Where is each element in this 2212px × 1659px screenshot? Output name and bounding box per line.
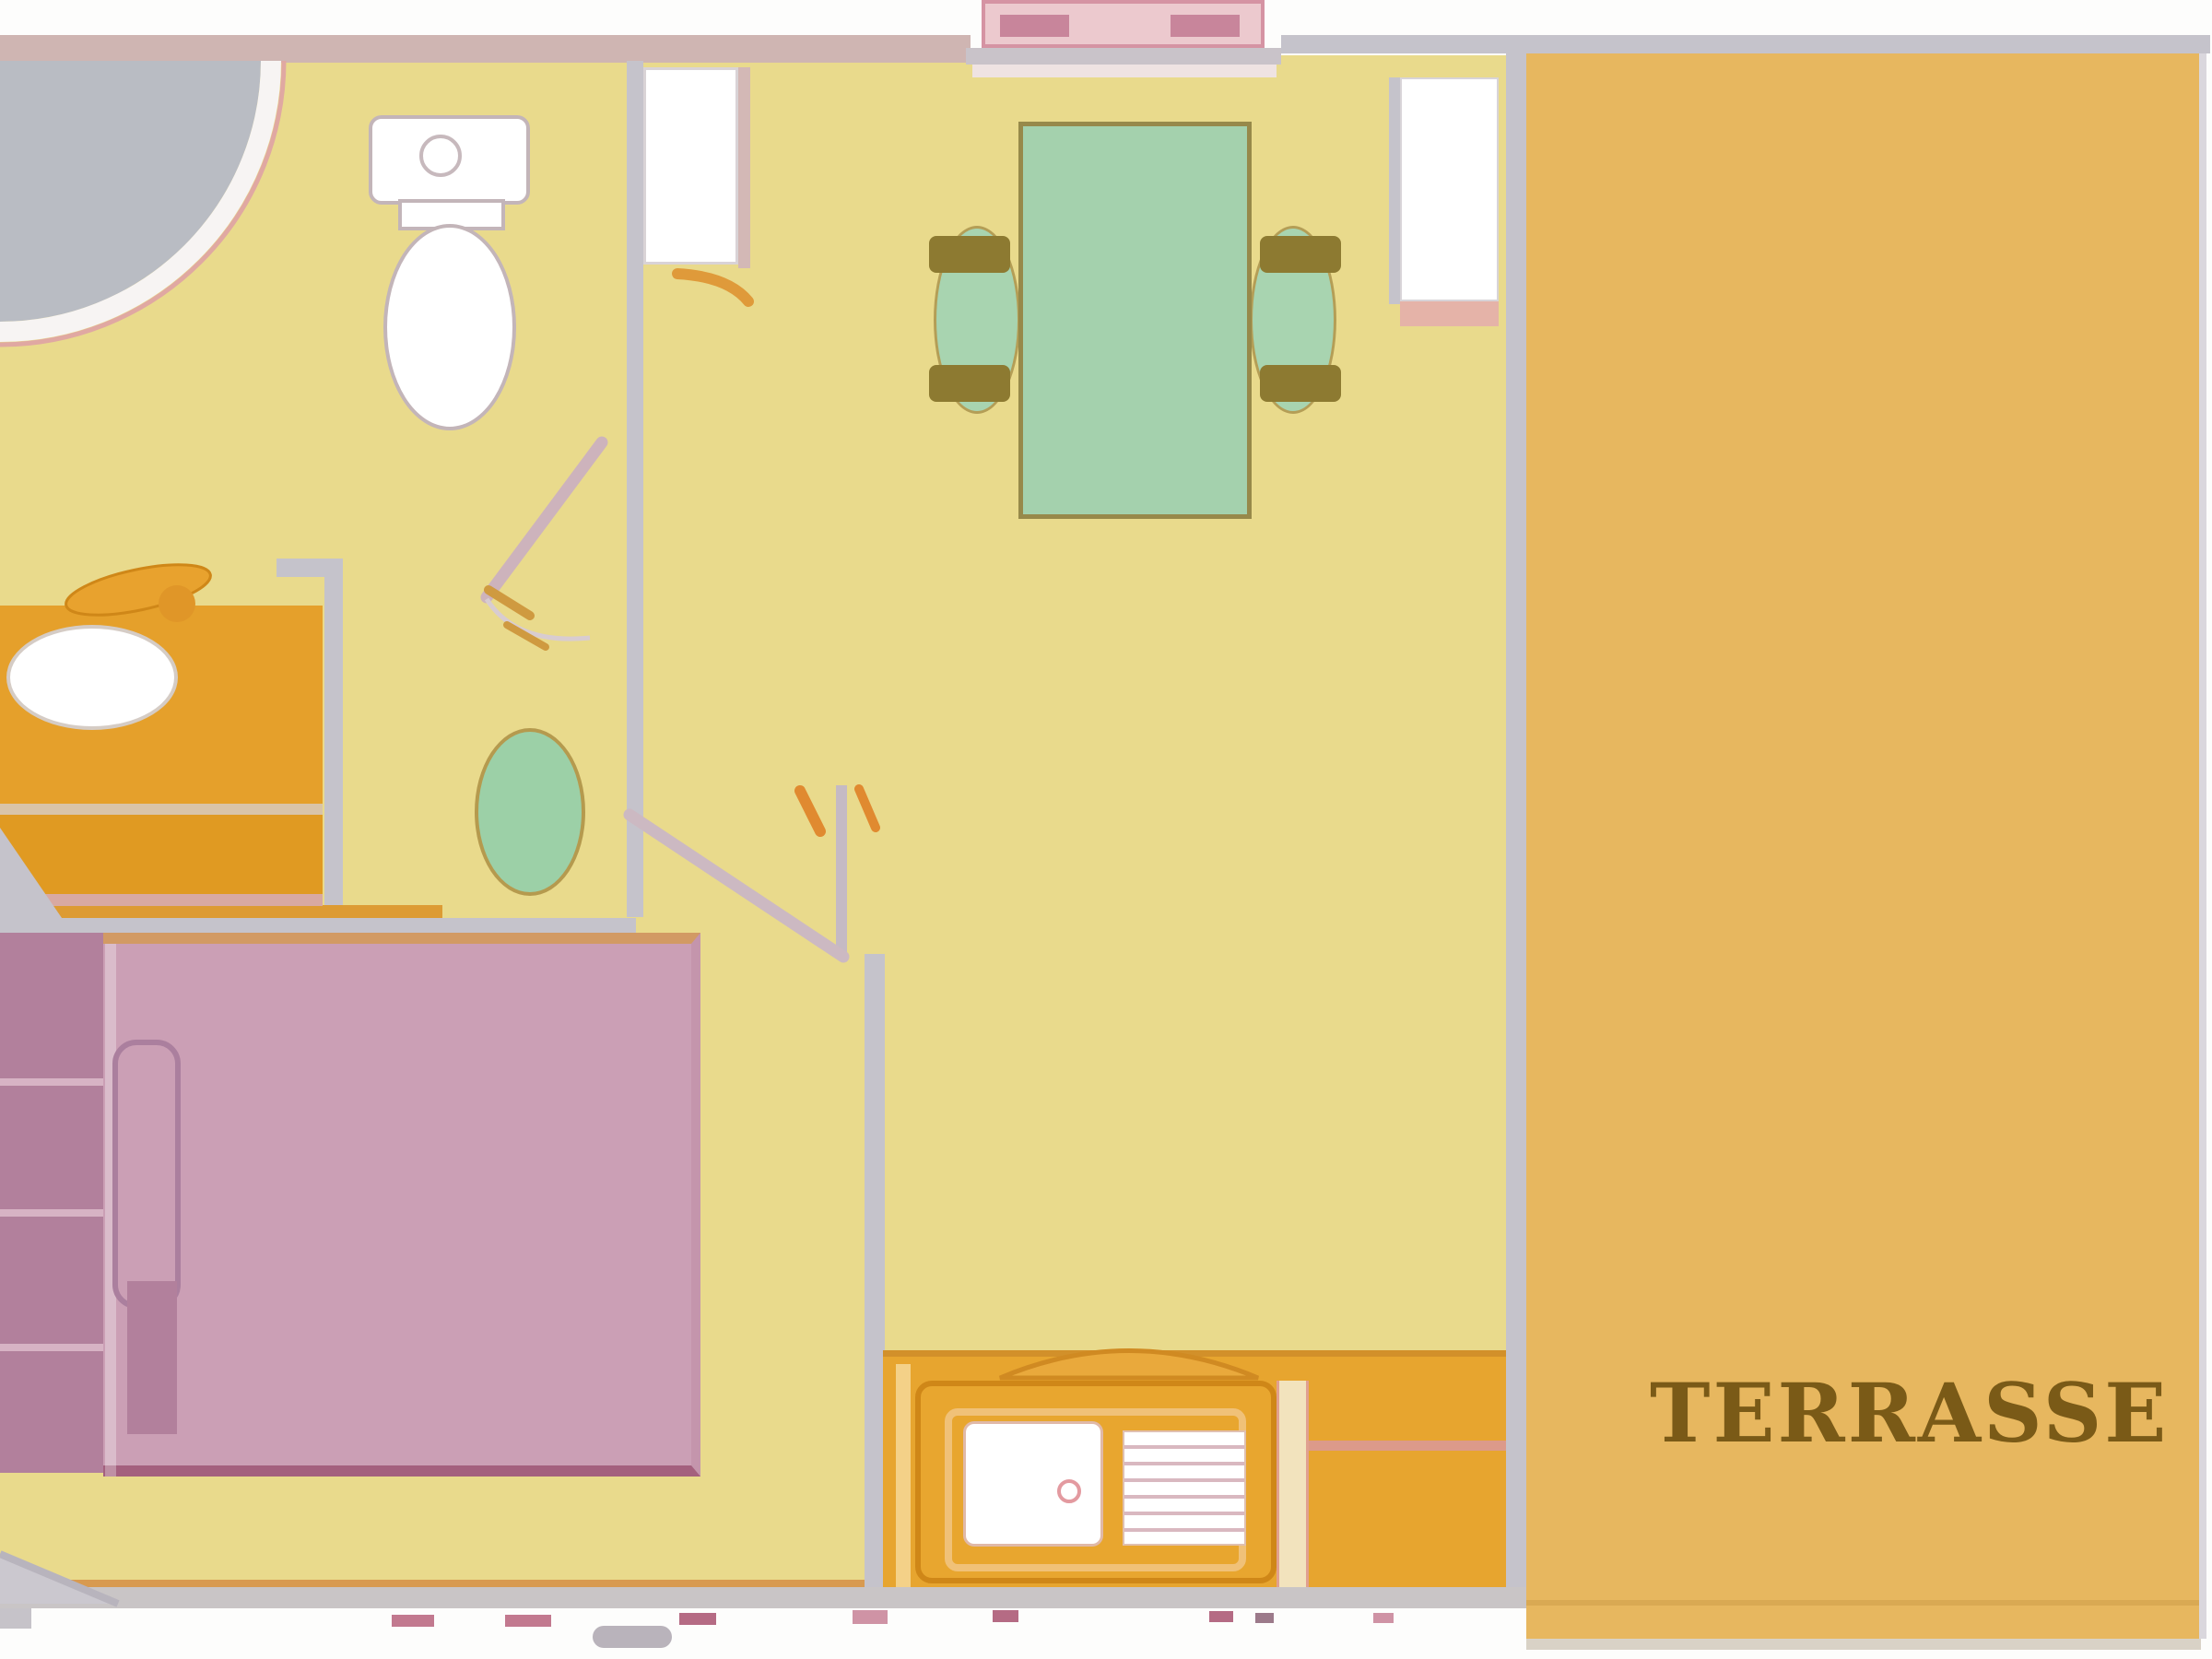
vanity-faucet-knob	[159, 585, 195, 622]
floor-plan: TERRASSE	[0, 0, 2212, 1659]
door-swing-arc-top	[677, 274, 748, 301]
hallway-door-leaf	[487, 442, 602, 597]
corner-shadow	[0, 828, 72, 933]
bedroom-door-leaf	[629, 815, 843, 957]
hallway-door-arc	[487, 599, 590, 639]
kitchen-faucet-arch	[1000, 1351, 1258, 1379]
corner-shower	[0, 61, 261, 322]
terrace-label: TERRASSE	[1650, 1362, 2111, 1464]
door-hinge-mark	[859, 789, 876, 828]
door-hinge-mark	[800, 791, 820, 831]
